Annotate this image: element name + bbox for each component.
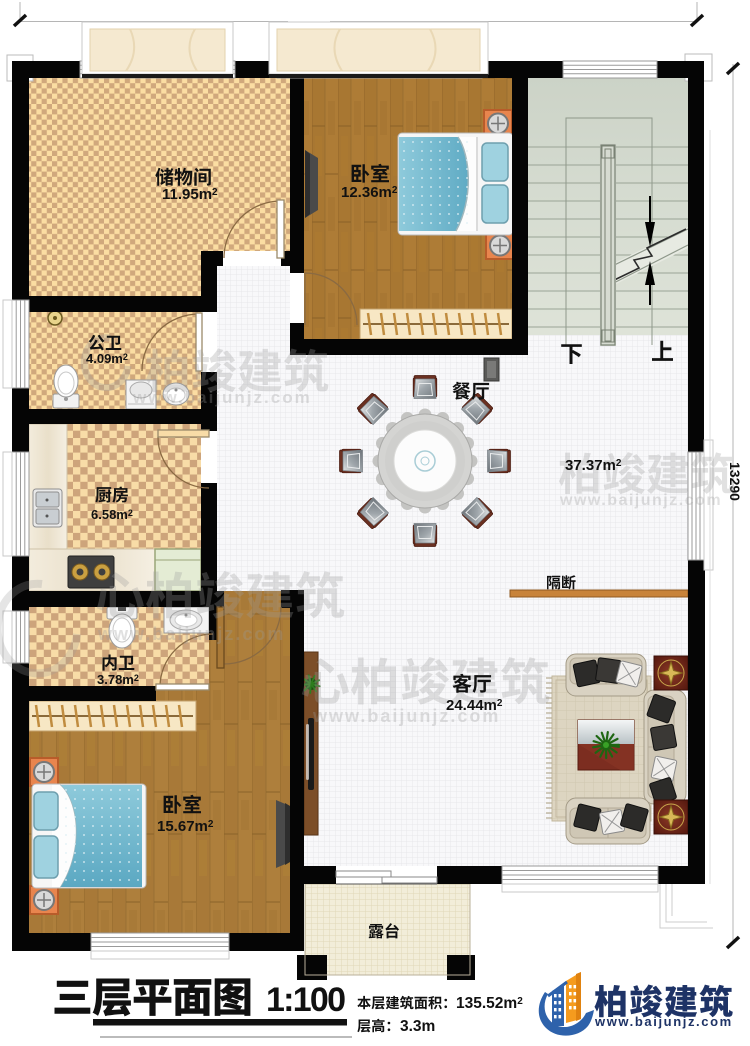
svg-text:6.58m2: 6.58m2 (91, 507, 133, 522)
svg-text:11.95m2: 11.95m2 (162, 186, 218, 203)
svg-text:3.3m: 3.3m (400, 1018, 435, 1035)
svg-text:www.baijunjz.com: www.baijunjz.com (97, 624, 285, 644)
svg-text:13290: 13290 (727, 462, 743, 501)
svg-text:4.09m2: 4.09m2 (86, 351, 128, 366)
svg-text:3.78m2: 3.78m2 (97, 672, 139, 687)
svg-text:www.baijunjz.com: www.baijunjz.com (559, 492, 722, 509)
svg-text:www.baijunjz.com: www.baijunjz.com (132, 388, 312, 407)
svg-text:1:100: 1:100 (266, 981, 346, 1019)
svg-text:12.36m2: 12.36m2 (341, 184, 398, 201)
svg-text:37.37m2: 37.37m2 (565, 457, 622, 474)
svg-text:24.44m2: 24.44m2 (446, 697, 503, 714)
svg-text:15.67m2: 15.67m2 (157, 818, 214, 835)
svg-text:135.52m2: 135.52m2 (456, 995, 523, 1012)
svg-text:www.baijunjz.com: www.baijunjz.com (594, 1014, 733, 1029)
